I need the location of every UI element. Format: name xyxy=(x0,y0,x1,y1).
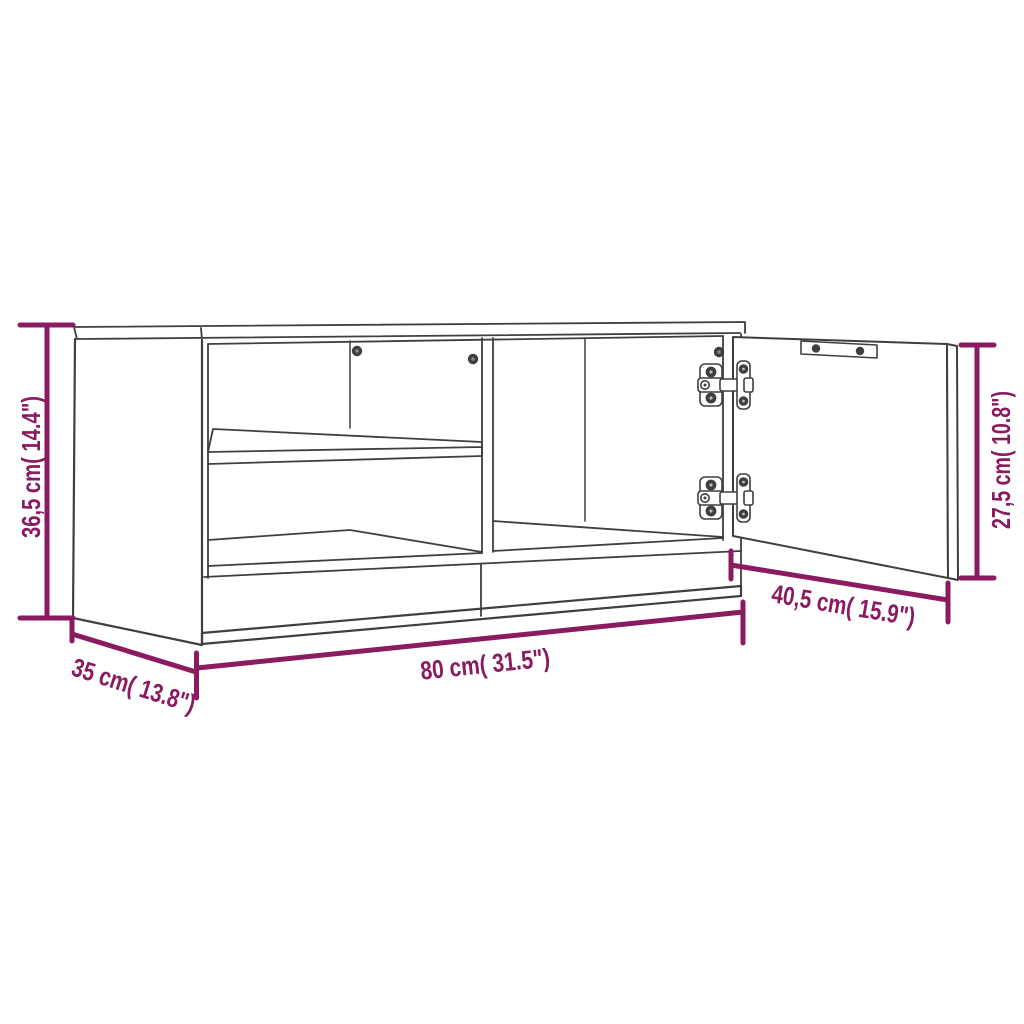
width-label: 80 cm( 31.5") xyxy=(419,642,551,685)
door-height-label: 27,5 cm( 10.8") xyxy=(986,391,1016,529)
screw-hole-3 xyxy=(714,347,724,357)
door-hinge-bottom xyxy=(698,474,753,522)
screw-hole-1 xyxy=(352,346,362,356)
open-door-panel xyxy=(733,337,958,580)
height-label: 36,5 cm( 14.4") xyxy=(16,396,46,538)
left-side-panel xyxy=(73,339,202,645)
right-compartment-floor xyxy=(493,521,723,551)
door-hinge-top xyxy=(698,361,753,409)
bottom-edge-band xyxy=(202,586,741,644)
left-compartment-floor xyxy=(208,530,482,566)
cabinet-body xyxy=(73,322,745,645)
center-partition xyxy=(482,338,493,553)
middle-shelf xyxy=(208,429,482,464)
product-dimension-image: 36,5 cm( 14.4") 35 cm( 13.8") 80 cm( 31.… xyxy=(0,0,1024,1024)
front-bottom-rail xyxy=(204,551,741,616)
door-width-label: 40,5 cm( 15.9") xyxy=(770,578,918,632)
depth-label: 35 cm( 13.8") xyxy=(68,652,199,719)
back-panel-seams xyxy=(350,338,585,521)
cabinet-dimension-diagram: 36,5 cm( 14.4") 35 cm( 13.8") 80 cm( 31.… xyxy=(0,0,1024,1024)
screw-hole-2 xyxy=(468,354,478,364)
